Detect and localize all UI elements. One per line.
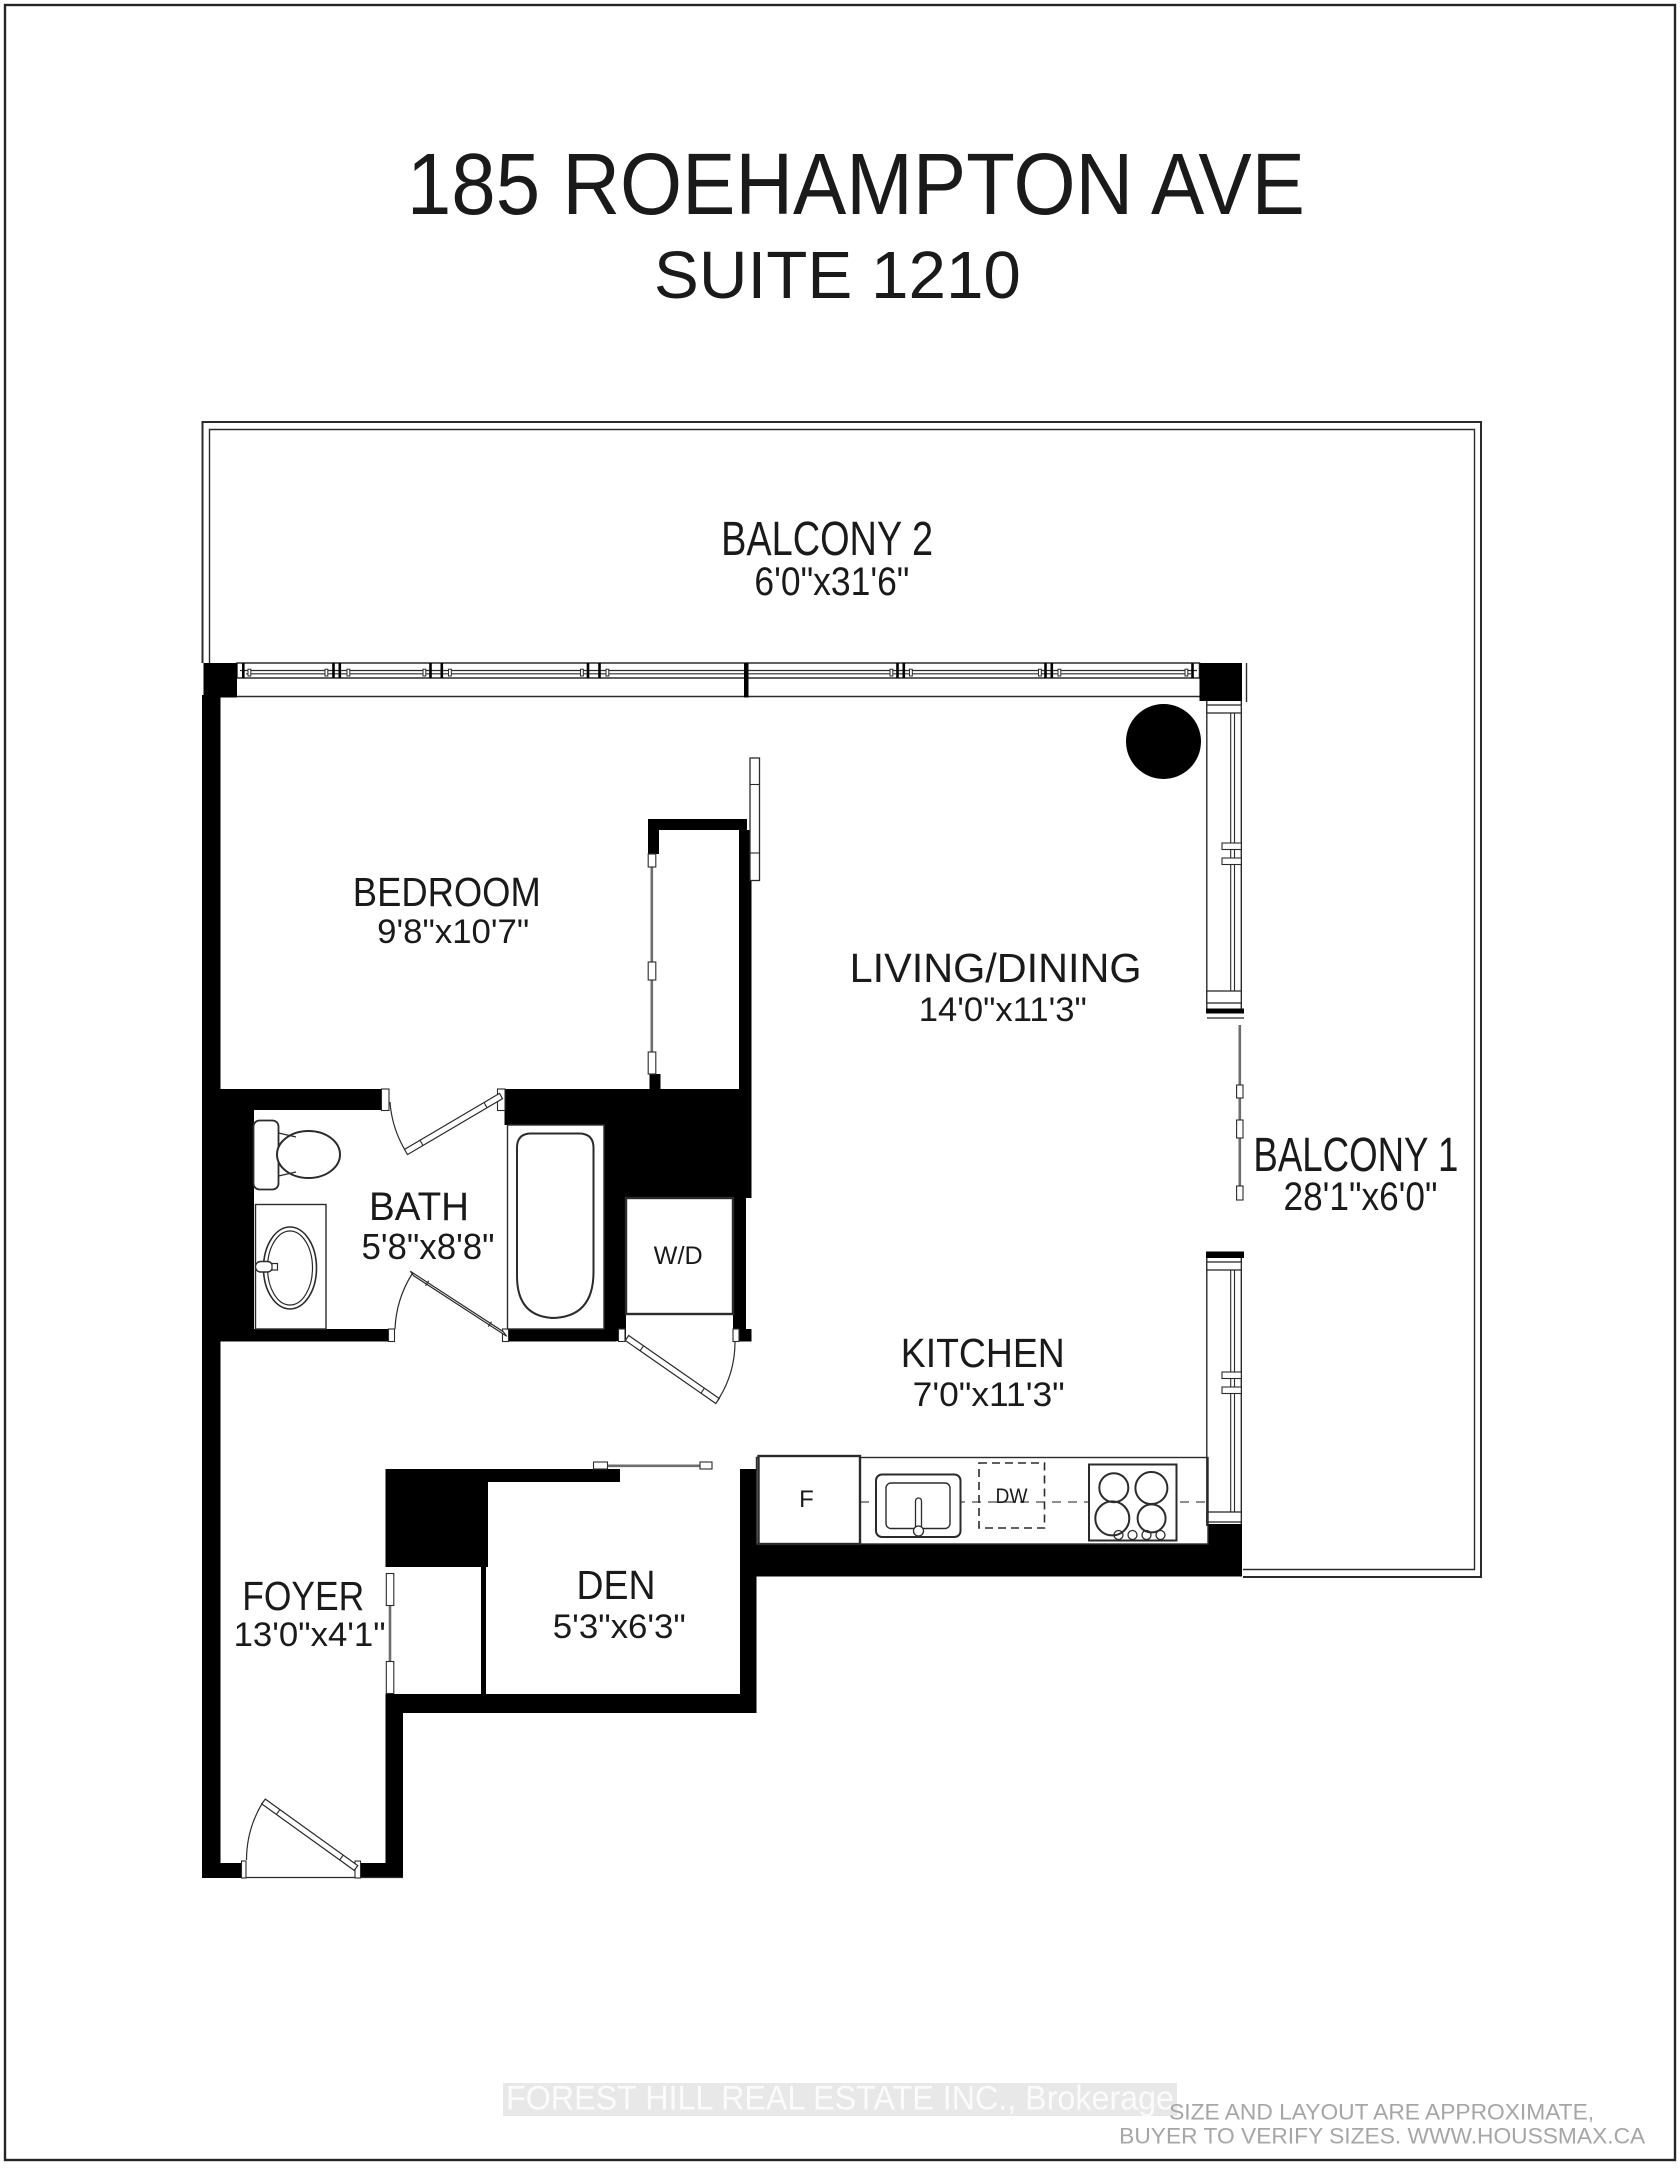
svg-text:BUYER TO VERIFY SIZES. WWW.HOU: BUYER TO VERIFY SIZES. WWW.HOUSSMAX.CA bbox=[1119, 2124, 1645, 2149]
svg-text:W/D: W/D bbox=[654, 1242, 703, 1270]
svg-text:BATH: BATH bbox=[369, 1185, 469, 1229]
svg-text:7'0"x11'3": 7'0"x11'3" bbox=[913, 1376, 1065, 1414]
svg-text:5'3"x6'3": 5'3"x6'3" bbox=[553, 1608, 686, 1646]
svg-text:6'0"x31'6": 6'0"x31'6" bbox=[754, 560, 909, 604]
svg-text:BALCONY 2: BALCONY 2 bbox=[721, 513, 933, 566]
svg-text:LIVING/DINING: LIVING/DINING bbox=[850, 945, 1142, 991]
svg-text:13'0"x4'1": 13'0"x4'1" bbox=[234, 1616, 386, 1654]
svg-text:SUITE 1210: SUITE 1210 bbox=[654, 238, 1021, 313]
svg-text:5'8"x8'8": 5'8"x8'8" bbox=[362, 1226, 495, 1267]
svg-text:185 ROEHAMPTON AVE: 185 ROEHAMPTON AVE bbox=[407, 136, 1305, 233]
svg-text:28'1"x6'0": 28'1"x6'0" bbox=[1284, 1175, 1438, 1219]
svg-text:KITCHEN: KITCHEN bbox=[901, 1330, 1065, 1376]
svg-text:DW: DW bbox=[996, 1485, 1028, 1508]
svg-text:F: F bbox=[799, 1486, 814, 1513]
svg-text:BEDROOM: BEDROOM bbox=[353, 869, 541, 915]
svg-text:9'8"x10'7": 9'8"x10'7" bbox=[377, 913, 529, 951]
svg-text:DEN: DEN bbox=[577, 1562, 656, 1608]
svg-text:SIZE AND LAYOUT ARE APPROXIMAT: SIZE AND LAYOUT ARE APPROXIMATE, bbox=[1169, 2099, 1594, 2124]
svg-text:FOREST HILL REAL ESTATE INC.,: FOREST HILL REAL ESTATE INC., Brokerage bbox=[506, 2080, 1174, 2118]
svg-text:FOYER: FOYER bbox=[242, 1573, 364, 1619]
svg-text:14'0"x11'3": 14'0"x11'3" bbox=[919, 991, 1087, 1029]
